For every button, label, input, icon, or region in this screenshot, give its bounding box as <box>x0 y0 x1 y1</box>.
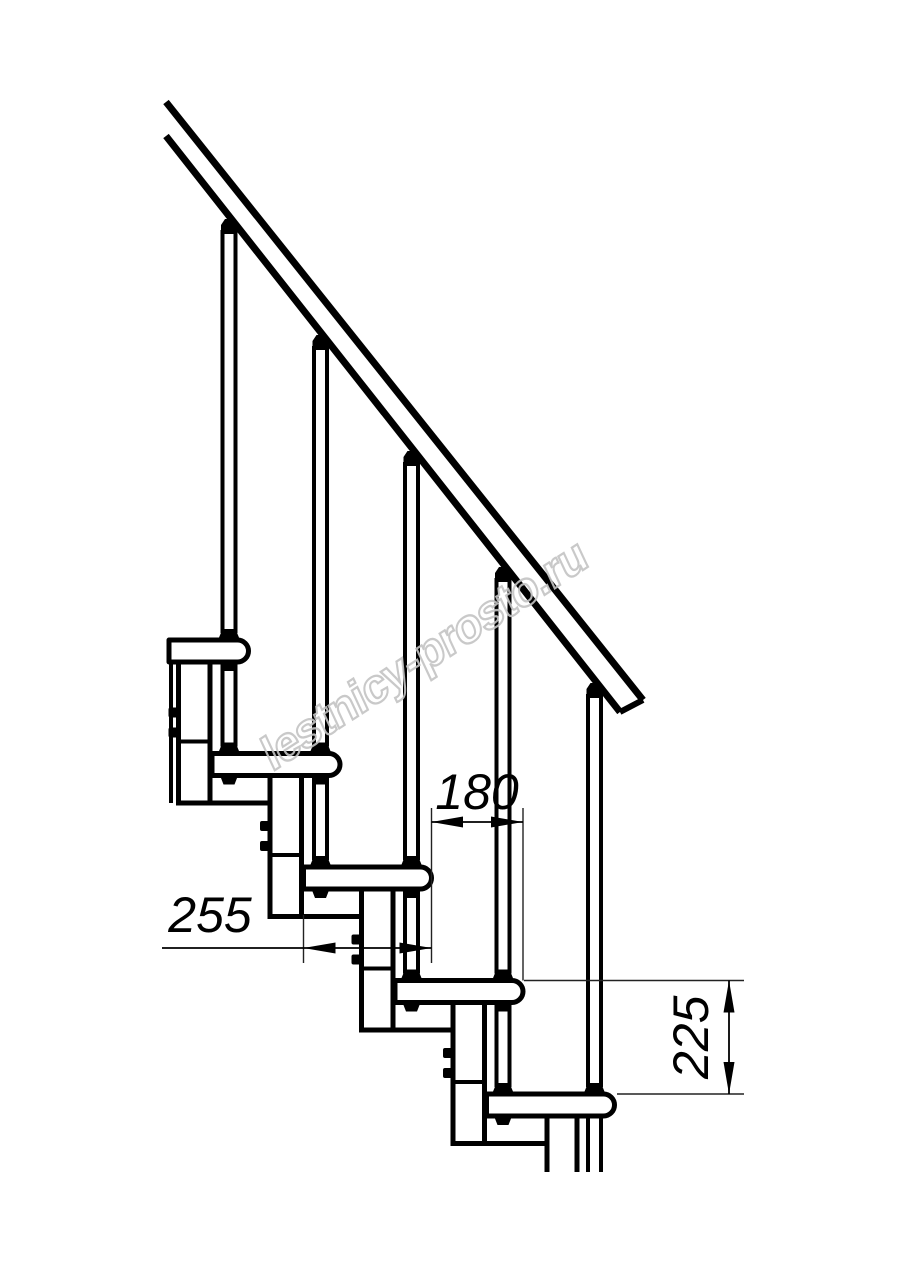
support-column-4 <box>453 1003 485 1144</box>
support-column-3 <box>362 889 394 1030</box>
staircase-drawing: 180 255 225 lestnicy-prosto.ru <box>0 0 914 1280</box>
watermark-text: lestnicy-prosto.ru <box>254 527 594 782</box>
tread-depth-label: 255 <box>167 887 252 943</box>
step-rise-label: 225 <box>663 995 719 1080</box>
tread-3 <box>304 867 432 889</box>
tread-5 <box>487 1094 615 1116</box>
strut-5 <box>588 1116 601 1172</box>
step-run-label: 180 <box>435 764 519 820</box>
handrail-end-cap <box>620 700 643 712</box>
strut-3 <box>405 889 418 972</box>
dimension-step-rise: 225 <box>524 981 744 1095</box>
support-column-2 <box>270 776 302 917</box>
strut-4 <box>497 1003 510 1086</box>
baluster-2 <box>314 348 327 745</box>
strut-2 <box>314 776 327 859</box>
baluster-1 <box>223 232 236 631</box>
tread-4 <box>395 981 523 1003</box>
strut-1 <box>223 662 236 745</box>
support-column-1 <box>179 662 211 803</box>
drawing-canvas: 180 255 225 lestnicy-prosto.ru <box>0 0 914 1280</box>
baluster-5 <box>588 696 601 1085</box>
support-column-5 <box>547 1116 577 1172</box>
tread-1 <box>169 640 249 662</box>
